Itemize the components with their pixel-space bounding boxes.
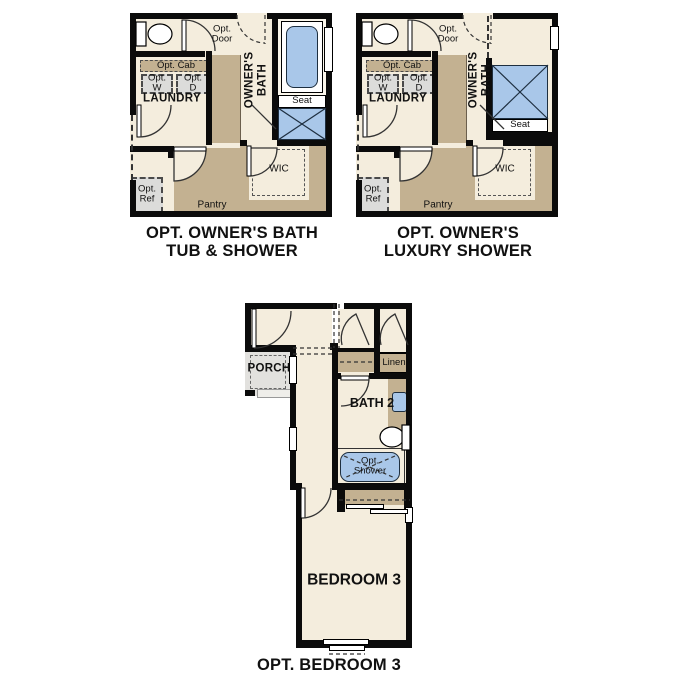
owners-bath-label: OWNER'S BATH — [467, 52, 492, 109]
caption-luxury-shower: OPT. OWNER'S LUXURY SHOWER — [354, 224, 562, 261]
caption-tub-shower: OPT. OWNER'S BATH TUB & SHOWER — [128, 224, 336, 261]
entry-floor — [251, 309, 332, 345]
luxury-shower-pan — [492, 65, 548, 119]
opt-shower-label: Opt. Shower — [354, 457, 386, 478]
porch-step — [257, 389, 291, 398]
wic-label: WIC — [269, 164, 288, 175]
window — [324, 27, 333, 72]
closet-shelf — [337, 352, 374, 372]
vanity-counter — [438, 55, 467, 143]
porch-label: PORCH — [247, 363, 290, 376]
plan-owners-luxury-shower: Opt. Door OWNER'S BATH Seat Opt. Cab Opt… — [354, 8, 562, 220]
bath2-label: BATH 2 — [350, 397, 394, 411]
owners-bath-label: OWNER'S BATH — [243, 52, 268, 109]
shower-pan — [278, 108, 326, 140]
seat-label: Seat — [292, 96, 312, 106]
opt-dryer-label: Opt.D — [184, 74, 202, 95]
opt-dryer-label: Opt.D — [410, 74, 428, 95]
left-wall-opening — [357, 115, 359, 180]
laundry-label: LAUNDRY — [369, 93, 427, 106]
plan-opt-bedroom3: PORCH Linen BATH 2 Opt. Shower BEDROOM 3 — [243, 300, 415, 658]
laundry-label: LAUNDRY — [143, 93, 201, 106]
opt-ref-label: Opt.Ref — [364, 185, 382, 206]
caption-bedroom3: OPT. BEDROOM 3 — [243, 656, 415, 674]
window — [550, 26, 559, 50]
linen-label: Linen — [382, 358, 405, 368]
opt-door-label: Opt. Door — [212, 25, 233, 46]
bedroom-closet-shelf — [337, 490, 412, 505]
bedroom-window — [329, 645, 365, 651]
plan-owners-bath-tub-shower: Opt. Door OWNER'S BATH Seat Opt. Cab Opt… — [128, 8, 336, 220]
bath2-sink — [392, 392, 407, 412]
opt-ref-label: Opt.Ref — [138, 185, 156, 206]
left-wall-opening — [131, 115, 133, 180]
bathtub — [286, 26, 318, 88]
bedroom3-label: BEDROOM 3 — [307, 571, 401, 588]
pantry-label: Pantry — [424, 200, 453, 211]
opt-washer-label: Opt.W — [148, 74, 166, 95]
opt-cab-label: Opt. Cab — [157, 61, 195, 71]
wic-label: WIC — [495, 164, 514, 175]
vanity-counter — [212, 55, 241, 143]
opt-door-label: Opt. Door — [438, 25, 459, 46]
seat-label: Seat — [510, 120, 530, 130]
closet-slider-panel — [370, 509, 408, 514]
hall-window — [289, 427, 297, 451]
opt-cab-label: Opt. Cab — [383, 61, 421, 71]
floorplan-sheet: Opt. Door OWNER'S BATH Seat Opt. Cab Opt… — [0, 0, 687, 687]
opt-washer-label: Opt.W — [374, 74, 392, 95]
pantry-label: Pantry — [198, 200, 227, 211]
